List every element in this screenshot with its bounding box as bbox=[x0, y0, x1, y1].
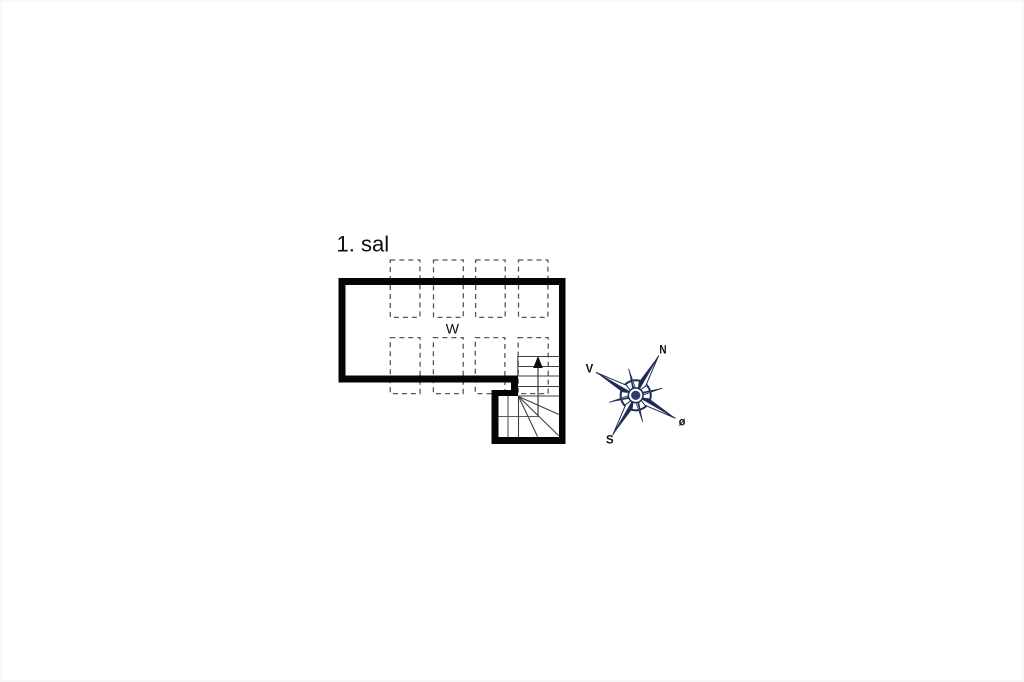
svg-text:W: W bbox=[446, 321, 460, 337]
svg-text:ø: ø bbox=[679, 414, 686, 428]
svg-text:S: S bbox=[606, 433, 614, 447]
svg-text:N: N bbox=[659, 343, 666, 357]
svg-text:1. sal: 1. sal bbox=[337, 232, 390, 257]
svg-text:V: V bbox=[586, 362, 594, 376]
